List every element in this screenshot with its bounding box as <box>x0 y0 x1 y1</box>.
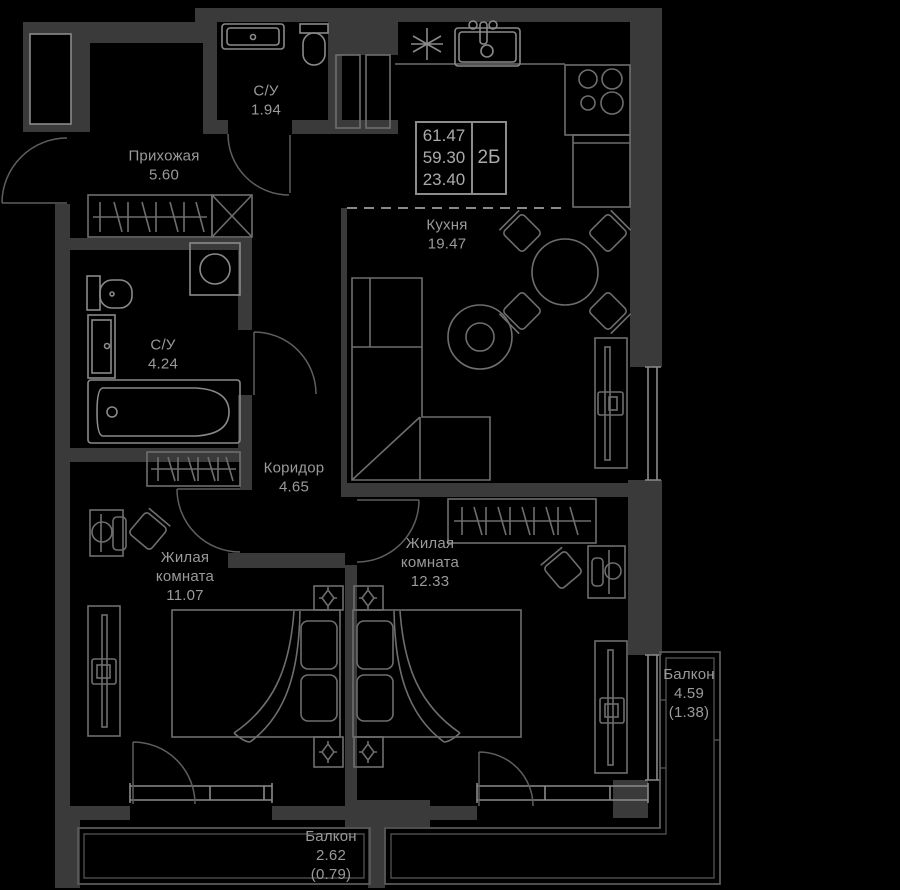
area-info-box: 61.47 59.30 23.40 2Б <box>415 121 507 195</box>
room-label-balcony-bottom: Балкон2.62(0.79) <box>305 828 357 884</box>
total-area: 61.47 <box>417 125 471 147</box>
balcony-door-bedroom-1 <box>133 742 195 804</box>
coffee-table <box>448 305 512 369</box>
sink-bathroom-top <box>222 24 284 49</box>
window-bedroom-1-south <box>130 783 272 803</box>
floor-plan: С/У1.94 Прихожая5.60 Кухня19.47 С/У4.24 … <box>0 0 900 890</box>
bed-bedroom-1 <box>172 610 340 742</box>
dining-chair <box>588 210 630 252</box>
kitchen-sink <box>455 21 520 66</box>
dining-chair <box>499 210 541 252</box>
nightstand-lamp <box>314 737 343 767</box>
dining-table <box>532 239 598 305</box>
toilet-bathroom-top <box>300 24 328 65</box>
tv-stand-kitchen <box>595 338 627 468</box>
desk-bedroom-1 <box>90 510 126 556</box>
stove-burners <box>565 65 630 135</box>
room-label-bathroom-top: С/У1.94 <box>251 82 281 120</box>
dining-chair <box>588 291 630 333</box>
room-label-hallway: Прихожая5.60 <box>128 147 199 185</box>
desk-bedroom-2 <box>588 546 625 598</box>
nightstand-lamp <box>354 737 383 767</box>
cooktop-star-icon <box>411 28 443 60</box>
closet-columns <box>336 55 390 128</box>
room-label-corridor: Коридор4.65 <box>264 459 325 497</box>
tv-stand-bedroom-2 <box>595 641 627 773</box>
entrance-door <box>2 138 67 203</box>
blanket-fold <box>234 611 300 742</box>
sofa <box>352 278 490 480</box>
window-kitchen-east <box>645 367 661 480</box>
nightstand-lamp <box>314 586 343 610</box>
door-bedroom-1 <box>177 489 240 552</box>
sink-main <box>88 315 115 378</box>
rooms-area: 23.40 <box>417 169 471 191</box>
hallway-closet-x <box>212 195 252 237</box>
door-bathroom-top <box>228 134 290 195</box>
vent-shaft <box>30 34 71 124</box>
dining-chair <box>499 291 541 333</box>
pillow <box>301 675 337 721</box>
room-label-balcony-right: Балкон4.59(1.38) <box>663 666 715 722</box>
pillow <box>301 621 337 669</box>
room-label-bedroom-1: Жилая комната11.07 <box>139 549 231 605</box>
room-label-kitchen: Кухня19.47 <box>426 216 467 254</box>
tv-stand-bedroom-1 <box>88 606 120 736</box>
window-bedroom-2-balcony <box>645 655 661 780</box>
area-values: 61.47 59.30 23.40 <box>417 123 471 193</box>
toilet-main <box>87 276 132 310</box>
room-label-bedroom-2: Жилая комната12.33 <box>384 535 476 591</box>
desk-chair-bedroom-1 <box>128 508 170 551</box>
apartment-type-label: 2Б <box>471 123 505 193</box>
washing-machine <box>190 243 240 295</box>
door-bathroom-main <box>254 332 316 395</box>
pillow <box>357 621 393 669</box>
living-area: 59.30 <box>417 147 471 169</box>
balcony-door-bedroom-2 <box>479 752 533 806</box>
desk-chair-bedroom-2 <box>541 547 583 590</box>
pillow <box>357 675 393 721</box>
nightstand-lamp <box>354 586 383 610</box>
bathtub <box>88 380 240 443</box>
bed-bedroom-2 <box>353 610 521 742</box>
kitchen-cabinet <box>573 135 630 207</box>
hallway-wardrobe <box>88 195 212 237</box>
blanket-fold <box>394 611 460 742</box>
room-label-bathroom-main: С/У4.24 <box>148 336 178 374</box>
